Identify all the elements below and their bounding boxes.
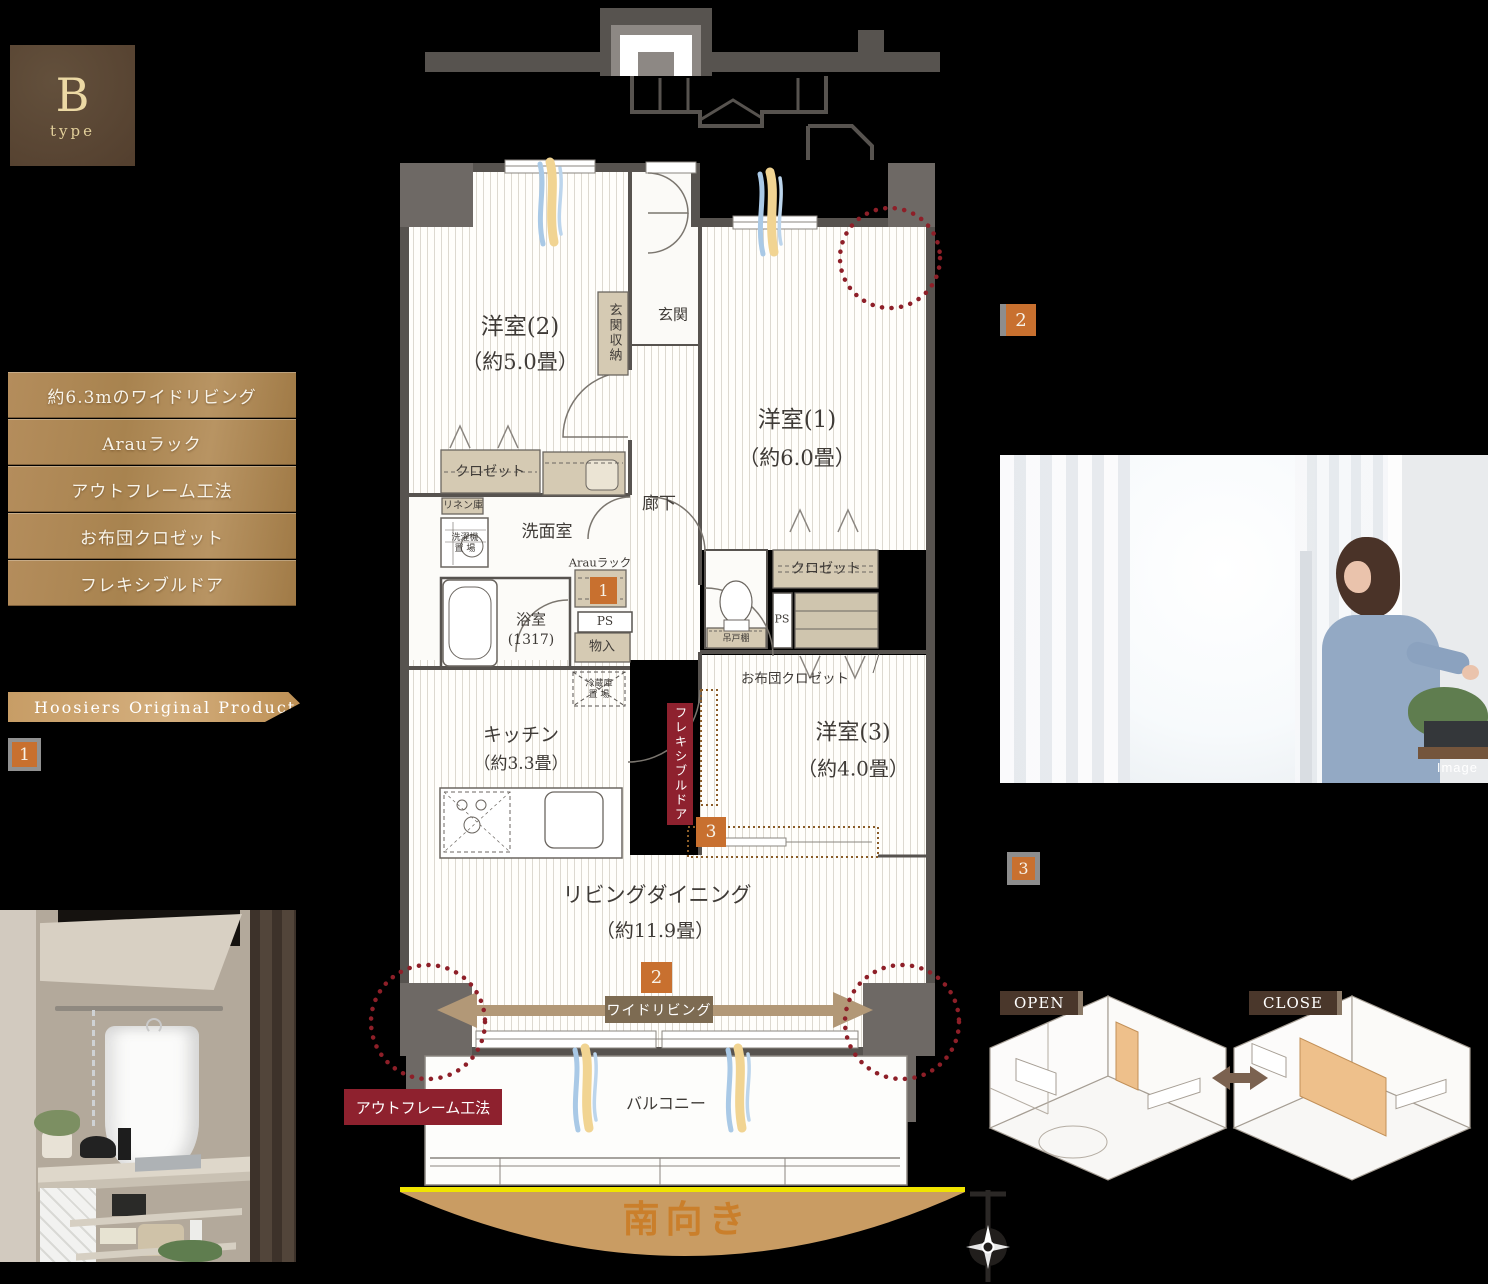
photo-planter: [1424, 721, 1488, 747]
close-label: CLOSE: [1249, 991, 1342, 1015]
photo-iron: [80, 1136, 116, 1158]
room2-label: 洋室(2): [481, 314, 560, 340]
room3-size: （約4.0畳）: [797, 758, 909, 781]
bath-label: 浴室: [516, 611, 546, 628]
ld-label: リビングダイニング: [563, 883, 752, 907]
marker-1-left: 1: [8, 738, 41, 771]
marker-2-right: 2: [1000, 304, 1036, 336]
photo-bottle: [118, 1128, 131, 1160]
closet-room1-label: クロゼット: [791, 561, 861, 577]
image-caption: Image: [1437, 760, 1478, 775]
washer-label-1: 洗濯機: [451, 533, 478, 543]
feature-item: 約6.3mのワイドリビング: [8, 372, 296, 418]
photo-flap: [40, 914, 242, 990]
arau-label: Arauラック: [569, 556, 632, 569]
genkan-label: 玄関: [658, 306, 688, 323]
marker-3-plan: 3: [696, 817, 726, 847]
common-corridor: [425, 8, 940, 160]
photo-rod: [55, 1006, 223, 1011]
south-label: 南向き: [623, 1189, 752, 1243]
ps2-label: PS: [775, 614, 790, 627]
photo-plant-top: [34, 1110, 80, 1136]
type-badge: B type: [10, 45, 135, 166]
photo-dark-items: [112, 1194, 146, 1216]
flexible-door-banner: フレキシブルドア: [667, 703, 693, 825]
window-photo: Image: [1000, 455, 1488, 783]
linen-label: リネン庫: [443, 500, 483, 512]
photo-towels: [100, 1228, 136, 1244]
ps1-label: PS: [597, 615, 613, 629]
closet-room2-label: クロゼット: [455, 464, 525, 480]
fridge-label-1: 冷蔵庫: [585, 679, 612, 689]
balcony-label: バルコニー: [626, 1095, 706, 1113]
washer-label-2: 置 場: [455, 544, 476, 554]
ld-size: （約11.9畳）: [596, 921, 714, 943]
photo-window-light: [1130, 455, 1315, 783]
room2-size: （約5.0畳）: [461, 350, 578, 374]
photo-hanger-hook: [146, 1018, 162, 1034]
marker-3-right: 3: [1007, 852, 1040, 885]
page: B type 約6.3mのワイドリビング Arauラック アウトフレーム工法 お…: [0, 0, 1488, 1284]
futon-label: お布団クロゼット: [741, 672, 849, 688]
photo-plant-shelf: [1418, 747, 1488, 759]
bath-size: (1317): [508, 632, 555, 648]
type-letter: B: [56, 72, 90, 118]
feature-item: フレキシブルドア: [8, 560, 296, 606]
room1-label: 洋室(1): [758, 407, 837, 433]
room1-size: （約6.0畳）: [738, 446, 855, 470]
type-sub: type: [50, 122, 95, 140]
photo-woman-hand: [1462, 665, 1479, 680]
outframe-banner: アウトフレーム工法: [344, 1089, 502, 1125]
wide-living-banner: ワイドリビング: [605, 996, 713, 1023]
genkan-storage-label: 玄関収納: [606, 303, 621, 363]
room3-label: 洋室(3): [815, 720, 890, 745]
kitchen-size: （約3.3畳）: [473, 755, 568, 775]
photo-frame-bar: [1300, 551, 1312, 783]
compass-icon: [966, 1190, 1010, 1282]
washroom-label: 洗面室: [522, 523, 573, 543]
photo-wall-edge: [0, 910, 38, 1262]
marker-2-plan: 2: [641, 962, 672, 993]
photo-woman-face: [1344, 561, 1371, 593]
feature-item: アウトフレーム工法: [8, 466, 296, 512]
photo-wood-pillar: [250, 910, 296, 1262]
feature-item: お布団クロゼット: [8, 513, 296, 559]
hoosiers-ribbon: Hoosiers Original Product: [8, 692, 300, 722]
iso-open-diagram: [990, 996, 1226, 1180]
hanging-label: 吊戸棚: [722, 634, 749, 644]
photo-curtain-left: [1000, 455, 1135, 783]
photo-plant-bottom: [158, 1240, 222, 1262]
marker-1-plan: 1: [590, 577, 617, 604]
corridor-label: 廊下: [642, 495, 676, 515]
kitchen-label: キッチン: [483, 725, 559, 747]
feature-item: Arauラック: [8, 419, 296, 465]
arau-rack-photo: [0, 910, 296, 1262]
fridge-label-2: 置 場: [589, 690, 610, 700]
iso-close-diagram: [1234, 996, 1470, 1180]
open-label: OPEN: [1000, 991, 1083, 1015]
mono-label: 物入: [589, 641, 615, 656]
photo-chain: [92, 1010, 95, 1128]
